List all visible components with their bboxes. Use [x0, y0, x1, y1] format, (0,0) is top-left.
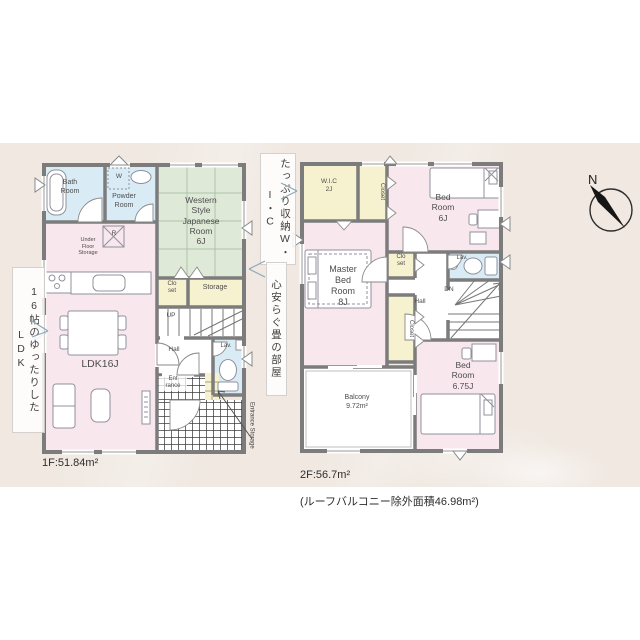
label-japanese-room: Western Style Japanese Room 6J [170, 195, 232, 247]
label-hall-1f: Hall [161, 346, 187, 354]
floor2-area-note: (ルーフバルコニー除外面積46.98m²) [300, 496, 479, 508]
label-bed675: Bed Room 6.75J [432, 360, 494, 391]
compass-icon: N [578, 162, 640, 242]
label-entrance: Ent rance [159, 376, 187, 391]
label-stairs-dn: DN [439, 286, 459, 294]
plan-background-band: Bath Room W Powder Room Western Style Ja… [0, 143, 640, 487]
label-master: Master Bed Room 8J [314, 264, 372, 308]
label-closet-small: Clo set [388, 254, 414, 269]
label-bath: Bath Room [48, 179, 92, 196]
label-stairs-up: UP [161, 312, 181, 320]
label-washer: W [112, 173, 126, 181]
label-storage-1f: Storage [188, 284, 242, 293]
floorplan-sheet: Bath Room W Powder Room Western Style Ja… [0, 0, 640, 640]
callout-tatami: 心安らぐ畳の部屋 [266, 262, 287, 396]
label-wic: W.I.C 2J [304, 178, 354, 194]
label-ldk: LDK16J [68, 358, 132, 371]
callout-wic: たっぷり収納W・I・C [260, 153, 296, 265]
label-bed6: Bed Room 6J [412, 192, 474, 223]
floor2-area-label: 2F:56.7m² (ルーフバルコニー除外面積46.98m²) [300, 456, 479, 509]
label-closet-top: Closet [360, 168, 385, 216]
label-balcony: Balcony 9.72m² [328, 394, 386, 411]
label-powder: Powder Room [103, 193, 145, 210]
compass-north-label: N [588, 172, 597, 187]
floor1-area-label: 1F:51.84m² [42, 457, 98, 470]
callout-wic-arrow [281, 181, 299, 201]
callout-ldk: 16帖のゆったりしたLDK [12, 267, 45, 433]
label-closet-1f: Clo set [159, 281, 185, 296]
label-lav-2f: Lav. [450, 255, 474, 262]
label-fridge: R [108, 230, 120, 238]
callout-tatami-arrow [249, 259, 267, 279]
label-closet-side: Closet [388, 302, 414, 356]
label-under-floor-storage: Under Floor Storage [70, 237, 106, 257]
floor2-area: 2F:56.7m² [300, 469, 350, 481]
label-lav-1f: Lav. [214, 343, 238, 350]
entrance-storage-arrow [212, 383, 256, 445]
floor2-plan: W.I.C 2J Closet Bed Room 6J Master Bed R… [300, 162, 503, 453]
callout-ldk-arrow [32, 319, 50, 339]
